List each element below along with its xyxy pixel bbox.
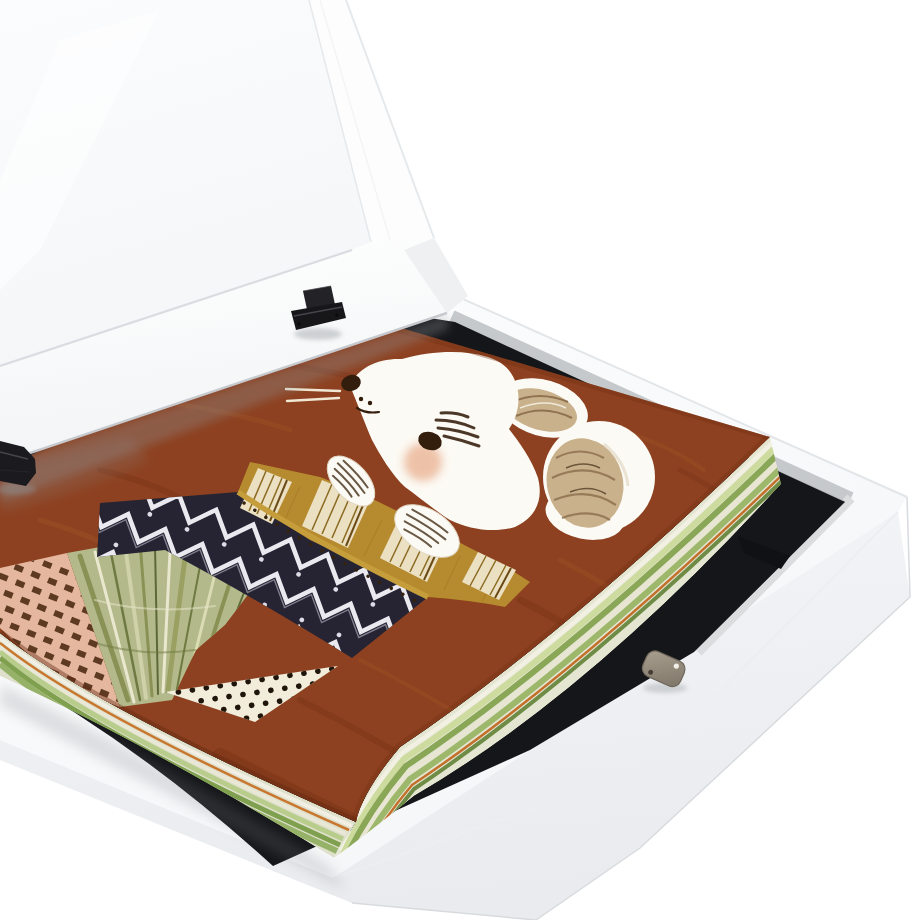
product-photo xyxy=(0,0,920,920)
photo-canvas xyxy=(0,0,920,920)
